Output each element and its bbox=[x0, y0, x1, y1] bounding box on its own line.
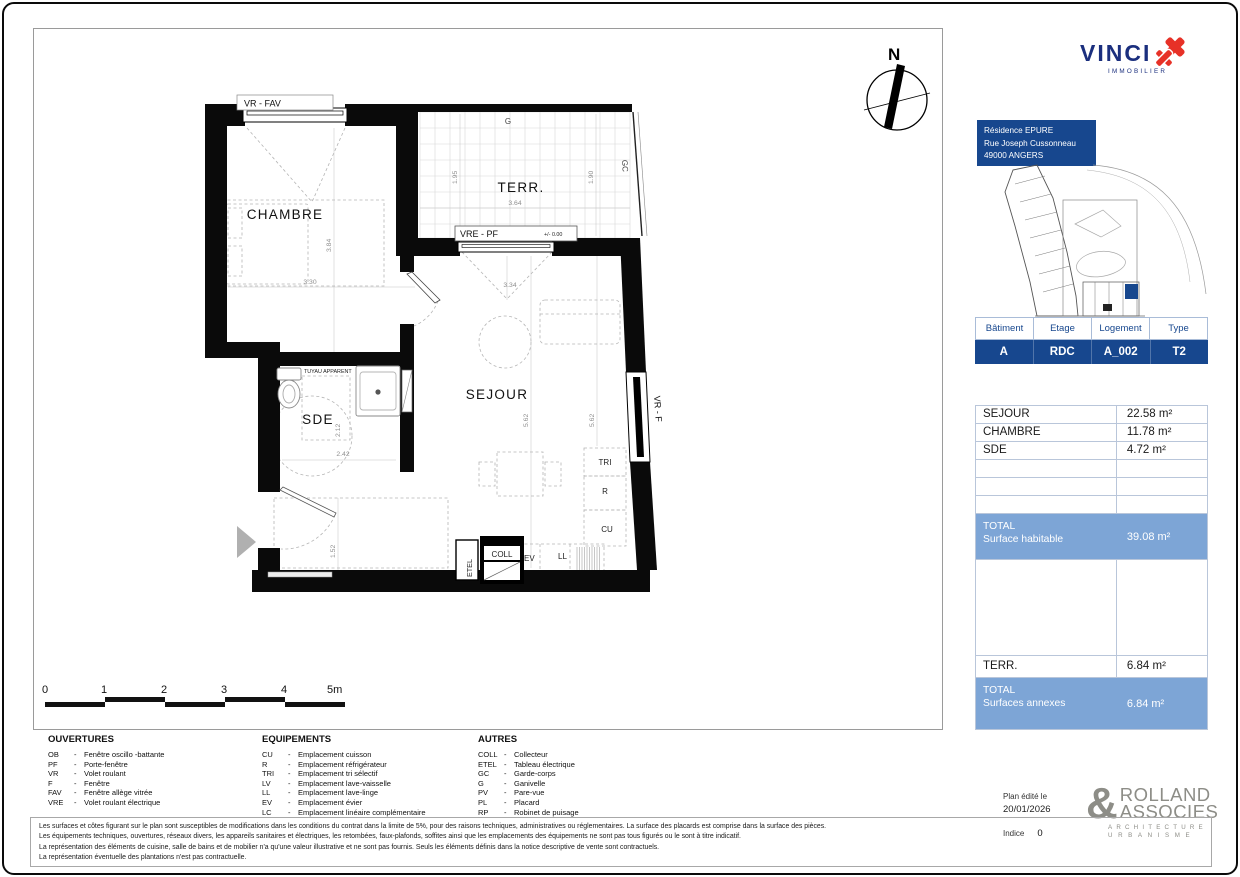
equip-etel: ETEL bbox=[465, 559, 474, 577]
surface-label: CHAMBRE bbox=[976, 424, 1117, 441]
header-logement: Logement bbox=[1091, 317, 1149, 340]
scale-3: 3 bbox=[221, 684, 227, 696]
compass-needle bbox=[884, 64, 905, 129]
wc-tank bbox=[277, 368, 301, 380]
door-leaf-entry bbox=[280, 487, 336, 517]
total-title: TOTAL bbox=[983, 684, 1117, 697]
round-table bbox=[479, 316, 531, 368]
note-g: G bbox=[505, 117, 511, 126]
surface-value: 22.58 m² bbox=[1117, 406, 1207, 423]
opening-label-vrepf: VRE - PF bbox=[460, 229, 499, 239]
room-label-sejour: SEJOUR bbox=[466, 387, 529, 402]
legend-title: AUTRES bbox=[478, 734, 579, 745]
note-gc: GC bbox=[620, 160, 630, 173]
total-title: TOTAL bbox=[983, 520, 1117, 533]
equip-coll: COLL bbox=[492, 550, 513, 559]
table-row: SDE 4.72 m² bbox=[976, 442, 1207, 460]
table-row: CHAMBRE 11.78 m² bbox=[976, 424, 1207, 442]
plan-labels: CHAMBRE TERR. SEJOUR SDE VR - FAV VRE - … bbox=[244, 99, 664, 578]
equip-ev: EV bbox=[524, 554, 535, 563]
residence-city: 49000 ANGERS bbox=[984, 150, 1096, 163]
table-row: SEJOUR 22.58 m² bbox=[976, 406, 1207, 424]
chair bbox=[479, 462, 495, 486]
surfaces-table: SEJOUR 22.58 m² CHAMBRE 11.78 m² SDE 4.7… bbox=[975, 405, 1208, 730]
equip-cu: CU bbox=[601, 525, 613, 534]
room-label-chambre: CHAMBRE bbox=[247, 207, 324, 222]
value-batiment: A bbox=[975, 340, 1033, 364]
scale-0: 0 bbox=[42, 684, 48, 696]
entrance-arrow-icon bbox=[237, 526, 256, 558]
scale-2: 2 bbox=[161, 684, 167, 696]
total-subtitle: Surfaces annexes bbox=[983, 697, 1117, 710]
site-plan-building bbox=[1103, 304, 1112, 311]
legend-equipements: EQUIPEMENTS CU-Emplacement cuisson R-Emp… bbox=[262, 734, 426, 817]
vinci-emblem-icon bbox=[1151, 34, 1189, 72]
door-leaf-chambre bbox=[407, 272, 440, 303]
table-row bbox=[976, 496, 1207, 514]
dining-table bbox=[497, 452, 543, 496]
dim-364: 3.64 bbox=[508, 200, 521, 207]
unit-table-values: A RDC A_002 T2 bbox=[975, 340, 1208, 364]
openings bbox=[237, 95, 650, 577]
equip-tri: TRI bbox=[599, 458, 612, 467]
edition-date: 20/01/2026 bbox=[1003, 804, 1051, 815]
site-plan-unit-highlight bbox=[1125, 284, 1138, 299]
total-habitable-value: 39.08 m² bbox=[1117, 514, 1207, 559]
table-row bbox=[976, 460, 1207, 478]
room-label-sde: SDE bbox=[302, 412, 334, 427]
scale-4: 4 bbox=[281, 684, 287, 696]
surface-label: TERR. bbox=[976, 656, 1117, 677]
level-label: +/- 0.00 bbox=[544, 232, 562, 238]
header-type: Type bbox=[1149, 317, 1208, 340]
legend-ouvertures: OUVERTURES OB-Fenêtre oscillo -battante … bbox=[48, 734, 164, 808]
dim-330: 3.30 bbox=[303, 279, 316, 286]
vinci-wordmark: VINCI bbox=[1080, 40, 1151, 67]
surface-value: 6.84 m² bbox=[1117, 656, 1207, 677]
surface-value: 11.78 m² bbox=[1117, 424, 1207, 441]
legend-autres: AUTRES COLL-Collecteur ETEL-Tableau élec… bbox=[478, 734, 579, 817]
opening-label-vrf: VR - F bbox=[652, 395, 664, 422]
dim-195: 1.95 bbox=[452, 171, 459, 184]
door-arc-entry bbox=[281, 515, 335, 549]
header-etage: Etage bbox=[1033, 317, 1091, 340]
scale-1: 1 bbox=[101, 684, 107, 696]
scale-bar: 0 1 2 3 4 5m bbox=[42, 684, 345, 707]
compass: N bbox=[864, 45, 930, 130]
disclaimer-line: La représentation des éléments de cuisin… bbox=[39, 843, 1203, 853]
legend-title: EQUIPEMENTS bbox=[262, 734, 426, 745]
site-plan bbox=[975, 164, 1208, 317]
equip-r: R bbox=[602, 487, 608, 496]
surface-label: SEJOUR bbox=[976, 406, 1117, 423]
table-row-terrace: TERR. 6.84 m² bbox=[976, 656, 1207, 678]
header-batiment: Bâtiment bbox=[975, 317, 1033, 340]
threshold bbox=[268, 572, 332, 577]
residence-name: Résidence EPURE bbox=[984, 125, 1096, 138]
residence-address: Résidence EPURE Rue Joseph Cussonneau 49… bbox=[977, 120, 1096, 166]
plan-sheet: CHAMBRE TERR. SEJOUR SDE VR - FAV VRE - … bbox=[0, 0, 1240, 877]
total-habitable-row: TOTAL Surface habitable 39.08 m² bbox=[976, 514, 1207, 560]
disclaimer-line: La représentation éventuelle des plantat… bbox=[39, 853, 1203, 863]
table-row bbox=[976, 478, 1207, 496]
value-type: T2 bbox=[1150, 340, 1209, 364]
value-etage: RDC bbox=[1033, 340, 1092, 364]
total-annexes-row: TOTAL Surfaces annexes 6.84 m² bbox=[976, 678, 1207, 729]
disclaimer: Les surfaces et côtes figurant sur le pl… bbox=[30, 817, 1212, 867]
edition-label: Plan édité le bbox=[1003, 792, 1051, 801]
surface-label: SDE bbox=[976, 442, 1117, 459]
total-subtitle: Surface habitable bbox=[983, 533, 1117, 546]
window-swing-chambre bbox=[247, 128, 345, 202]
dim-152: 1.52 bbox=[330, 545, 337, 558]
opening-label-vrfav: VR - FAV bbox=[244, 99, 281, 109]
table-row-empty bbox=[976, 560, 1207, 656]
room-label-terrasse: TERR. bbox=[498, 180, 545, 195]
door-arc-chambre bbox=[414, 301, 438, 326]
disclaimer-line: Les équipements techniques, ouvertures, … bbox=[39, 832, 1203, 842]
washer-hatch bbox=[577, 547, 600, 574]
chair bbox=[545, 462, 561, 486]
entry-zone bbox=[274, 498, 448, 568]
surface-value: 4.72 m² bbox=[1117, 442, 1207, 459]
unit-info-table: Bâtiment Etage Logement Type A RDC A_002… bbox=[975, 317, 1208, 364]
vinci-subtitle: IMMOBILIER bbox=[1108, 68, 1210, 75]
disclaimer-line: Les surfaces et côtes figurant sur le pl… bbox=[39, 822, 1203, 832]
duct-zone bbox=[302, 376, 350, 440]
dim-190: 1.90 bbox=[588, 171, 595, 184]
wall-niche bbox=[402, 370, 412, 412]
compass-north-label: N bbox=[888, 45, 900, 64]
value-logement: A_002 bbox=[1091, 340, 1150, 364]
dim-334: 3.34 bbox=[503, 282, 516, 289]
note-tuyau: TUYAU APPARENT bbox=[304, 369, 352, 375]
unit-table-header: Bâtiment Etage Logement Type bbox=[975, 317, 1208, 340]
gc-railing bbox=[633, 112, 647, 236]
scale-5m: 5m bbox=[327, 684, 342, 696]
dim-384: 3.84 bbox=[326, 239, 333, 252]
residence-street: Rue Joseph Cussonneau bbox=[984, 138, 1096, 151]
dim-562b: 5.62 bbox=[589, 414, 596, 427]
legend-title: OUVERTURES bbox=[48, 734, 164, 745]
vinci-logo: VINCI IMMOBILIER bbox=[1080, 34, 1210, 75]
equip-ll: LL bbox=[558, 552, 567, 561]
dim-212: 2.12 bbox=[335, 424, 342, 437]
total-annexes-value: 6.84 m² bbox=[1117, 678, 1207, 729]
dim-562a: 5.62 bbox=[523, 414, 530, 427]
sofa bbox=[540, 300, 620, 344]
dim-242: 2.42 bbox=[336, 451, 349, 458]
